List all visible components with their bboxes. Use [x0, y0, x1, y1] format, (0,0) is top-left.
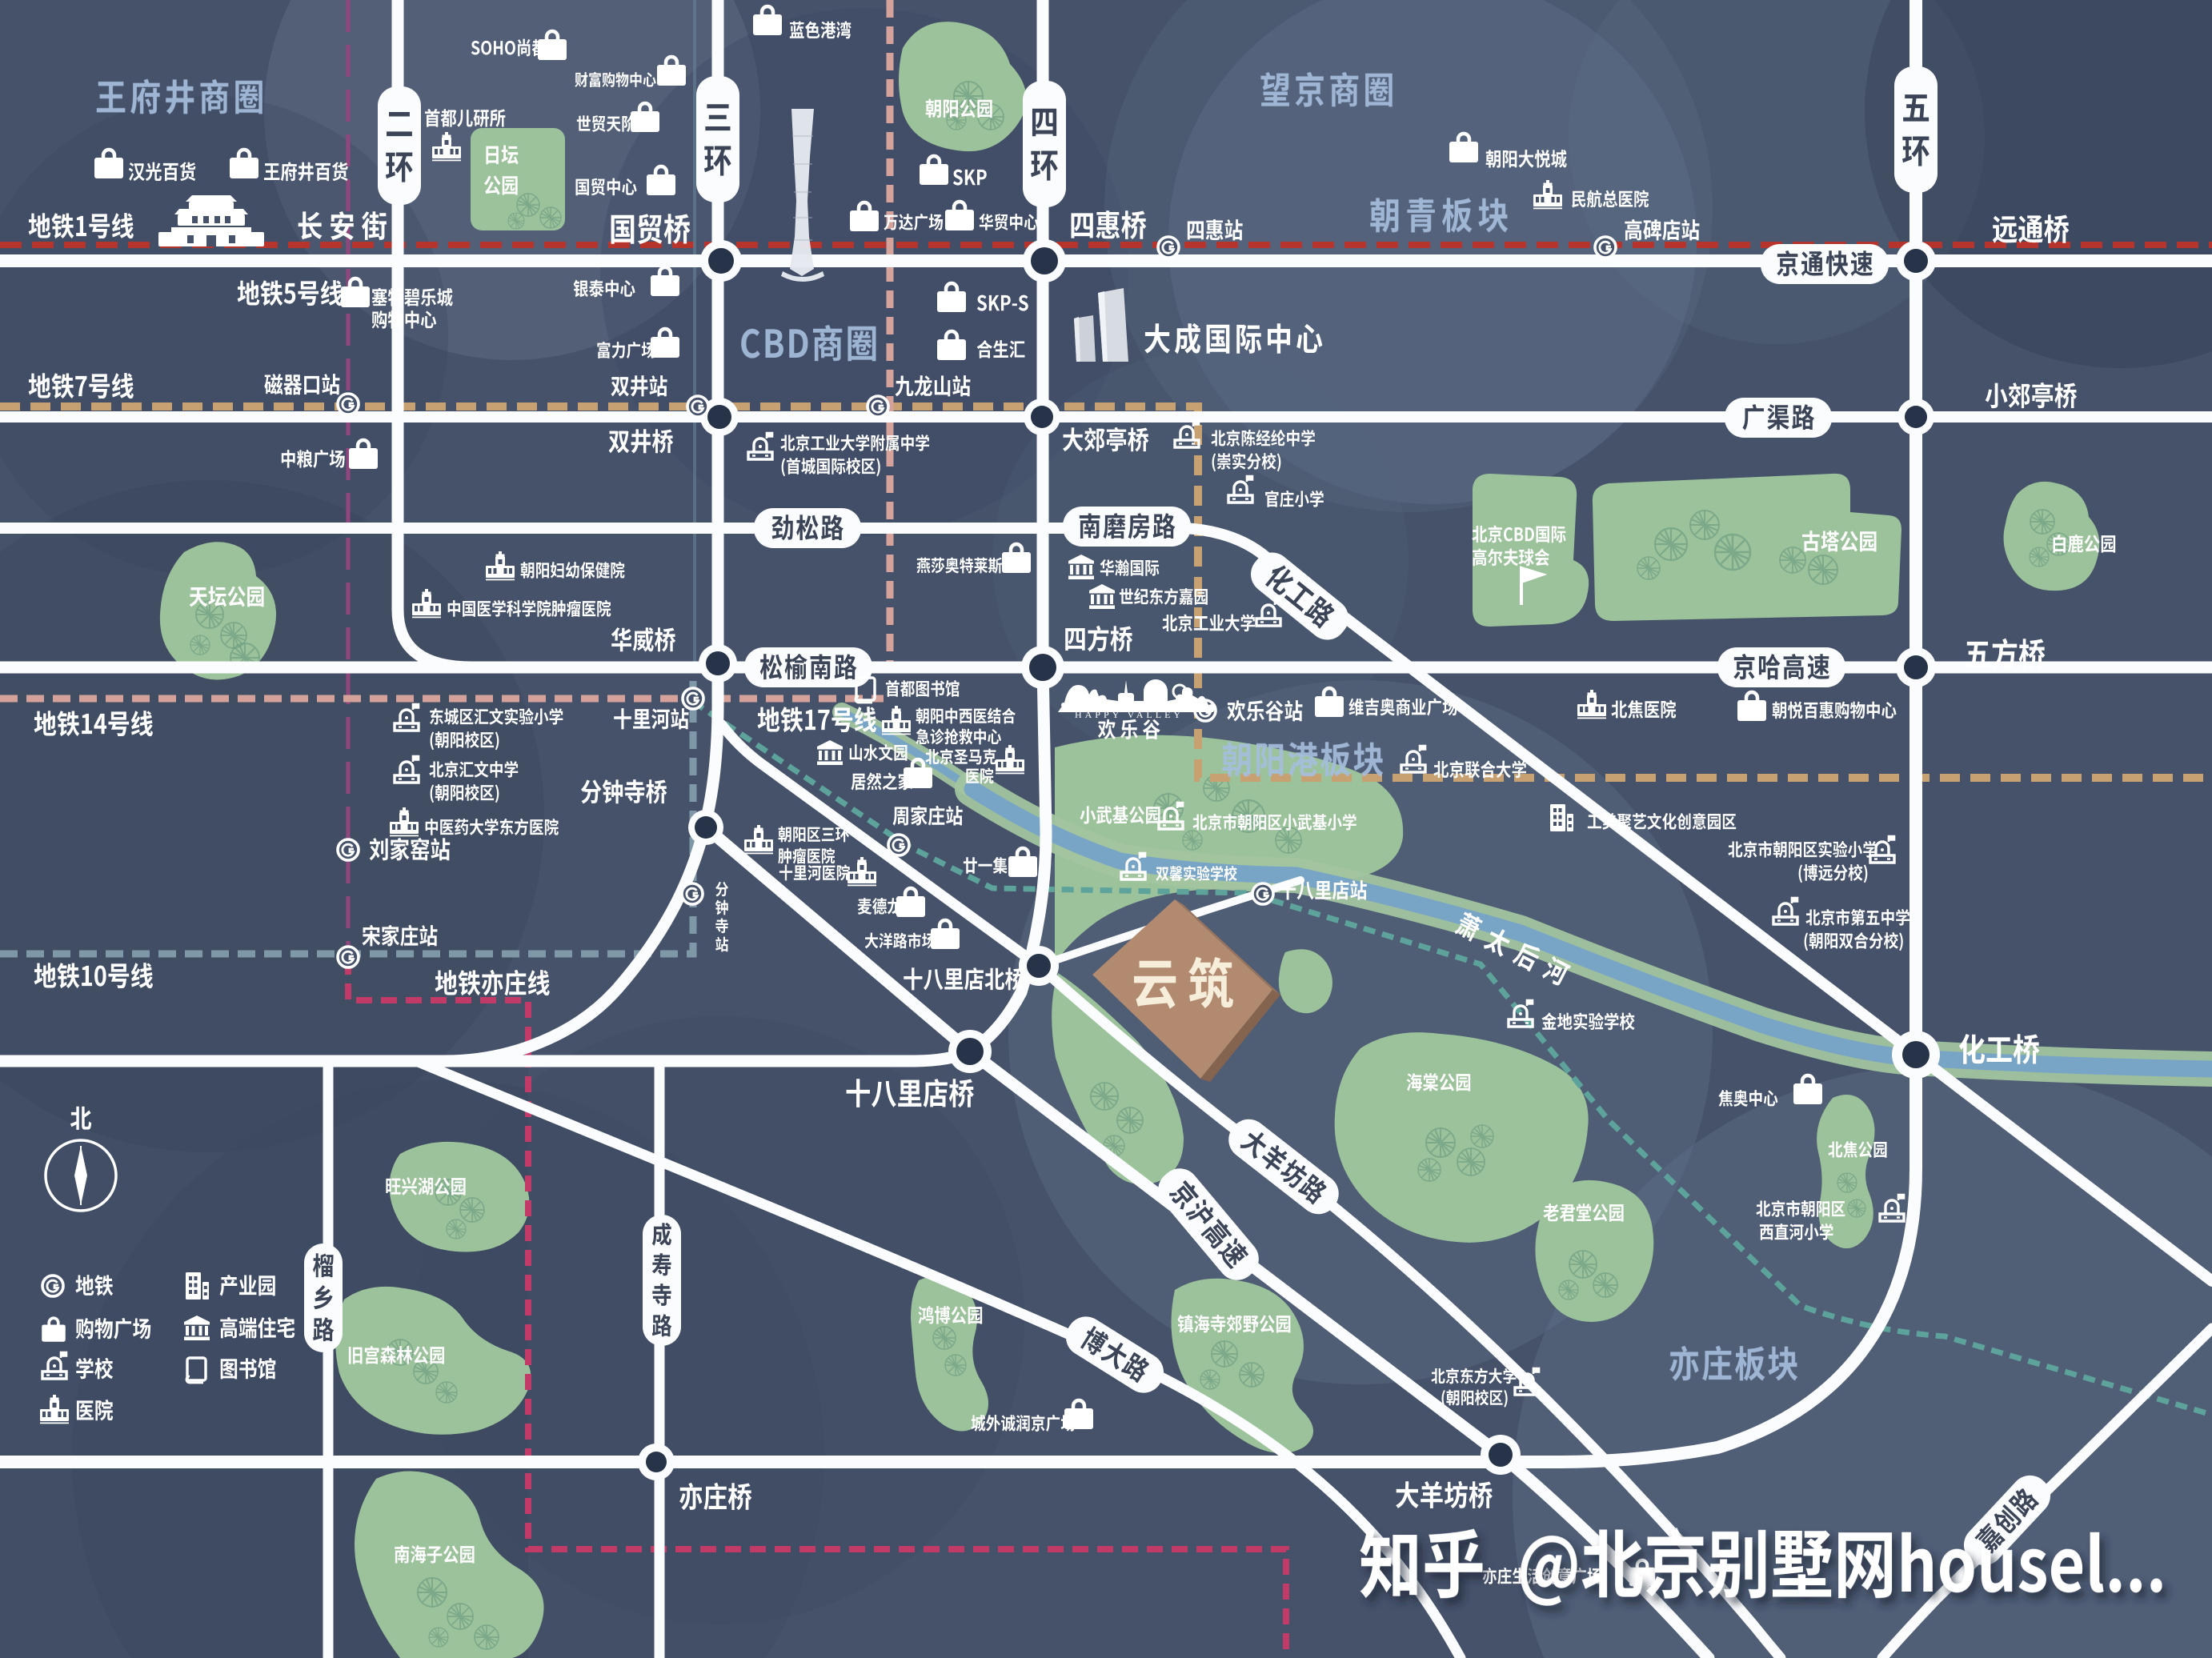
svg-text:HAPPY VALLEY: HAPPY VALLEY — [1075, 709, 1184, 720]
